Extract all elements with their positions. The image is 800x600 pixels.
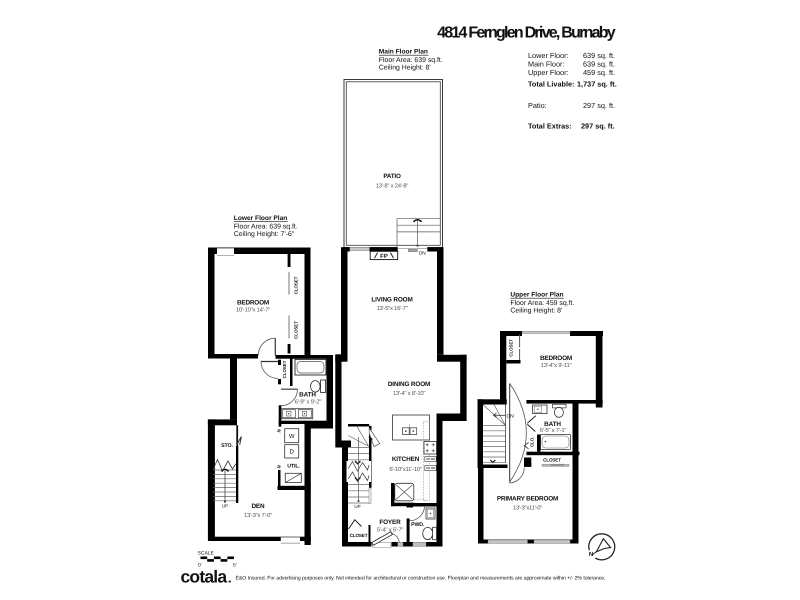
svg-text:N: N [589,551,593,558]
svg-text:10'-10"x 14'-7": 10'-10"x 14'-7" [236,307,270,314]
svg-text:DEN: DEN [251,503,265,510]
svg-text:FOYER: FOYER [379,519,401,526]
svg-text:Ceiling Height: 8': Ceiling Height: 8' [510,308,562,315]
svg-text:DN: DN [507,413,515,419]
svg-text:FP: FP [380,253,388,260]
svg-text:Total Livable:: Total Livable: [528,80,575,89]
svg-text:STO.: STO. [221,443,233,449]
svg-text:PRIMARY BEDROOM: PRIMARY BEDROOM [497,496,558,503]
svg-text:Floor Area: 639 sq.ft.: Floor Area: 639 sq.ft. [234,224,298,231]
svg-text:6'-9" x 9'-2": 6'-9" x 9'-2" [295,399,322,406]
svg-text:Floor Area: 639 sq.ft.: Floor Area: 639 sq.ft. [379,57,443,64]
svg-text:CLO.: CLO. [530,437,535,448]
svg-text:UP: UP [222,504,228,509]
svg-text:CLOSET: CLOSET [508,339,513,357]
svg-text:KITCHEN: KITCHEN [392,456,420,463]
svg-text:UTIL.: UTIL. [287,464,300,470]
svg-text:BATH: BATH [299,392,316,399]
svg-text:CLOSET: CLOSET [294,276,299,294]
svg-text:CLOSET: CLOSET [294,321,299,339]
svg-text:13'-5"x 16'-7": 13'-5"x 16'-7" [376,305,407,312]
svg-text:Main Floor Plan: Main Floor Plan [379,49,428,56]
svg-text:13'-3"x 7'-0": 13'-3"x 7'-0" [244,512,272,519]
svg-text:D: D [290,449,295,456]
svg-text:DN: DN [419,251,426,257]
svg-text:W: W [289,433,295,440]
svg-text:13'-8" x 24'-8": 13'-8" x 24'-8" [376,183,409,190]
svg-text:UP: UP [354,504,360,509]
svg-text:BEDROOM: BEDROOM [540,355,572,362]
svg-text:13'-3"x11'-0": 13'-3"x11'-0" [513,505,542,512]
svg-text:BEDROOM: BEDROOM [237,300,269,307]
svg-text:1,737 sq. ft.: 1,737 sq. ft. [577,80,617,89]
svg-text:459 sq. ft.: 459 sq. ft. [583,68,615,77]
svg-text:6'-10"x11'-10": 6'-10"x11'-10" [389,466,421,473]
svg-text:Ceiling Height: 7'-6": Ceiling Height: 7'-6" [234,231,295,238]
svg-text:Patio:: Patio: [528,101,547,110]
svg-text:LIVING ROOM: LIVING ROOM [371,297,412,304]
svg-text:CLOSET: CLOSET [543,458,561,463]
svg-text:5': 5' [233,563,237,569]
svg-text:Ceiling Height: 8': Ceiling Height: 8' [379,64,431,71]
svg-text:DINING ROOM: DINING ROOM [388,381,430,388]
svg-text:13'-4"x 9'-11": 13'-4"x 9'-11" [541,362,572,369]
svg-text:SCALE: SCALE [198,551,215,557]
svg-text:PATIO: PATIO [383,173,401,180]
svg-text:Floor Area: 459 sq.ft.: Floor Area: 459 sq.ft. [510,300,574,307]
svg-text:CLOSET: CLOSET [350,533,368,538]
svg-text:4814 Fernglen Drive, Burnaby: 4814 Fernglen Drive, Burnaby [437,25,616,42]
svg-text:Total Extras:: Total Extras: [528,122,572,131]
svg-text:CLOSET: CLOSET [282,360,287,378]
svg-text:6'-5" x 7'-1": 6'-5" x 7'-1" [540,427,567,434]
svg-text:Upper Floor:: Upper Floor: [528,68,569,77]
svg-text:E&O Insured. For advertising p: E&O Insured. For advertising purposes on… [236,575,606,581]
svg-text:PWD.: PWD. [411,522,425,528]
svg-text:13'-4" x 8'-10": 13'-4" x 8'-10" [393,390,426,397]
svg-text:cotala: cotala [181,567,228,587]
svg-text:297 sq. ft.: 297 sq. ft. [581,122,615,131]
svg-text:297 sq. ft.: 297 sq. ft. [583,101,615,110]
svg-text:Lower Floor Plan: Lower Floor Plan [234,215,287,222]
svg-text:Upper Floor Plan: Upper Floor Plan [510,292,563,299]
svg-text:BATH: BATH [544,421,561,428]
